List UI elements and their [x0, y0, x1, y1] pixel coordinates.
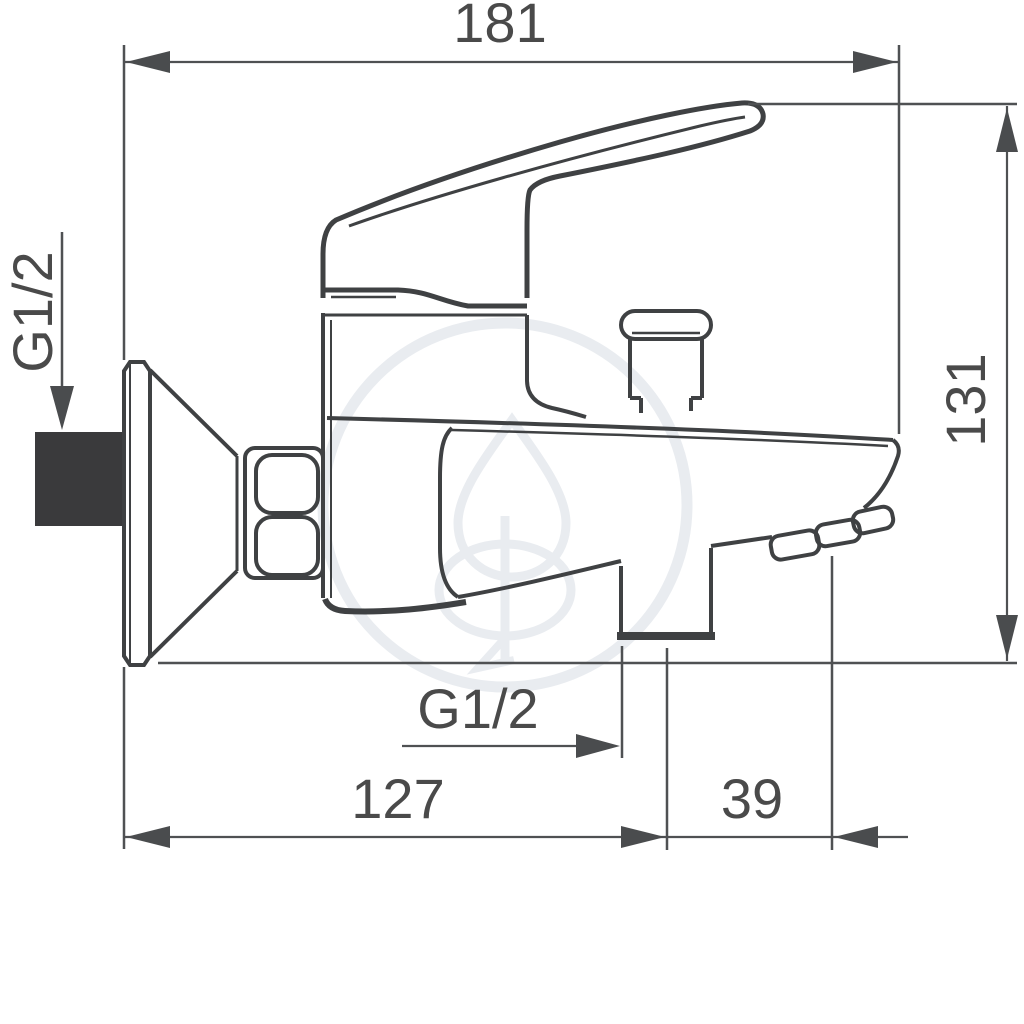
lever-handle: [323, 103, 763, 306]
flange-cone-bottom: [150, 571, 237, 657]
dim-label-outlet-to-spout: 39: [721, 767, 783, 830]
hex-nut: [245, 448, 323, 578]
flange-cone-top: [150, 370, 237, 456]
label-inlet-thread: G1/2: [1, 232, 74, 430]
handle-lever-inner-line: [349, 117, 745, 226]
arrowhead-127-right: [621, 826, 665, 848]
hex-nut-facet-top: [256, 455, 318, 513]
wall-inlet-pipe: [35, 432, 124, 526]
arrowhead-inlet: [50, 386, 74, 430]
aerator-segment: [769, 529, 820, 561]
drawing-canvas: 181 131 G1/2 G1/2 127 39: [0, 0, 1024, 1024]
spout: [327, 418, 899, 597]
flange-plate: [124, 362, 150, 665]
dim-label-total-width: 181: [453, 0, 546, 54]
outlet-thread-label: G1/2: [417, 677, 538, 740]
dim-label-total-height: 131: [934, 353, 997, 446]
dim-label-wall-to-outlet: 127: [351, 767, 444, 830]
wall-flange: [124, 362, 237, 665]
aerator-segment: [851, 505, 895, 535]
spout-tip-edge: [864, 440, 899, 508]
arrowhead-wall: [126, 826, 170, 848]
diverter-knob: [621, 311, 711, 413]
hex-nut-facet-bottom: [256, 517, 318, 575]
technical-drawing: 181 131 G1/2 G1/2 127 39: [0, 0, 1024, 1024]
arrowhead-39-right: [834, 826, 878, 848]
arrowhead-right: [853, 51, 897, 73]
arrowhead-left: [126, 51, 170, 73]
inlet-thread-label: G1/2: [1, 251, 64, 372]
arrowhead-down: [996, 615, 1018, 659]
spout-top-edge: [327, 418, 893, 440]
handle-outline: [323, 103, 763, 298]
spout-bottom-edge-right: [711, 537, 772, 546]
aerator: [769, 505, 895, 561]
diverter-cap: [621, 311, 711, 339]
arrowhead-up: [996, 108, 1018, 152]
arrowhead-outlet: [576, 734, 620, 758]
